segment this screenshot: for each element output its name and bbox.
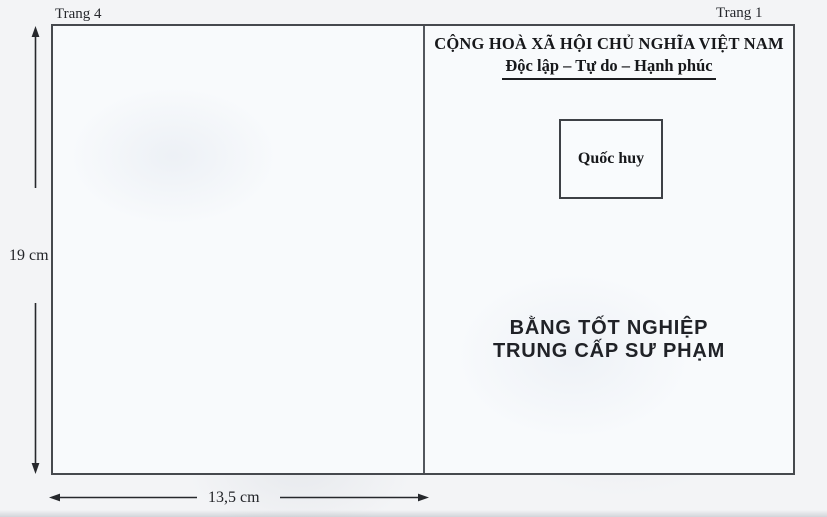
page-label-trang-1: Trang 1	[716, 4, 763, 22]
diploma-cover-outline: CỘNG HOÀ XÃ HỘI CHỦ NGHĨA VIỆT NAM Độc l…	[51, 24, 795, 475]
scan-edge-shadow	[0, 510, 827, 517]
national-emblem-placeholder: Quốc huy	[559, 119, 663, 199]
scanned-diagram-page: Trang 4 Trang 1 CỘNG HOÀ XÃ HỘI CHỦ NGHĨ…	[0, 0, 827, 517]
page-label-trang-4: Trang 4	[55, 5, 102, 23]
cover-back-page-4	[53, 26, 423, 473]
diploma-title: BẰNG TỐT NGHIỆP TRUNG CẤP SƯ PHẠM	[425, 317, 793, 363]
height-dimension-label: 19 cm	[9, 247, 49, 265]
diploma-title-line-2: TRUNG CẤP SƯ PHẠM	[425, 340, 793, 363]
national-header-line: CỘNG HOÀ XÃ HỘI CHỦ NGHĨA VIỆT NAM	[425, 34, 793, 54]
diploma-title-line-1: BẰNG TỐT NGHIỆP	[425, 317, 793, 340]
cover-front-page-1: CỘNG HOÀ XÃ HỘI CHỦ NGHĨA VIỆT NAM Độc l…	[425, 26, 793, 473]
emblem-label: Quốc huy	[578, 150, 644, 168]
width-dimension-label: 13,5 cm	[208, 489, 260, 507]
national-motto: Độc lập – Tự do – Hạnh phúc	[502, 56, 715, 80]
national-header: CỘNG HOÀ XÃ HỘI CHỦ NGHĨA VIỆT NAM Độc l…	[425, 34, 793, 80]
